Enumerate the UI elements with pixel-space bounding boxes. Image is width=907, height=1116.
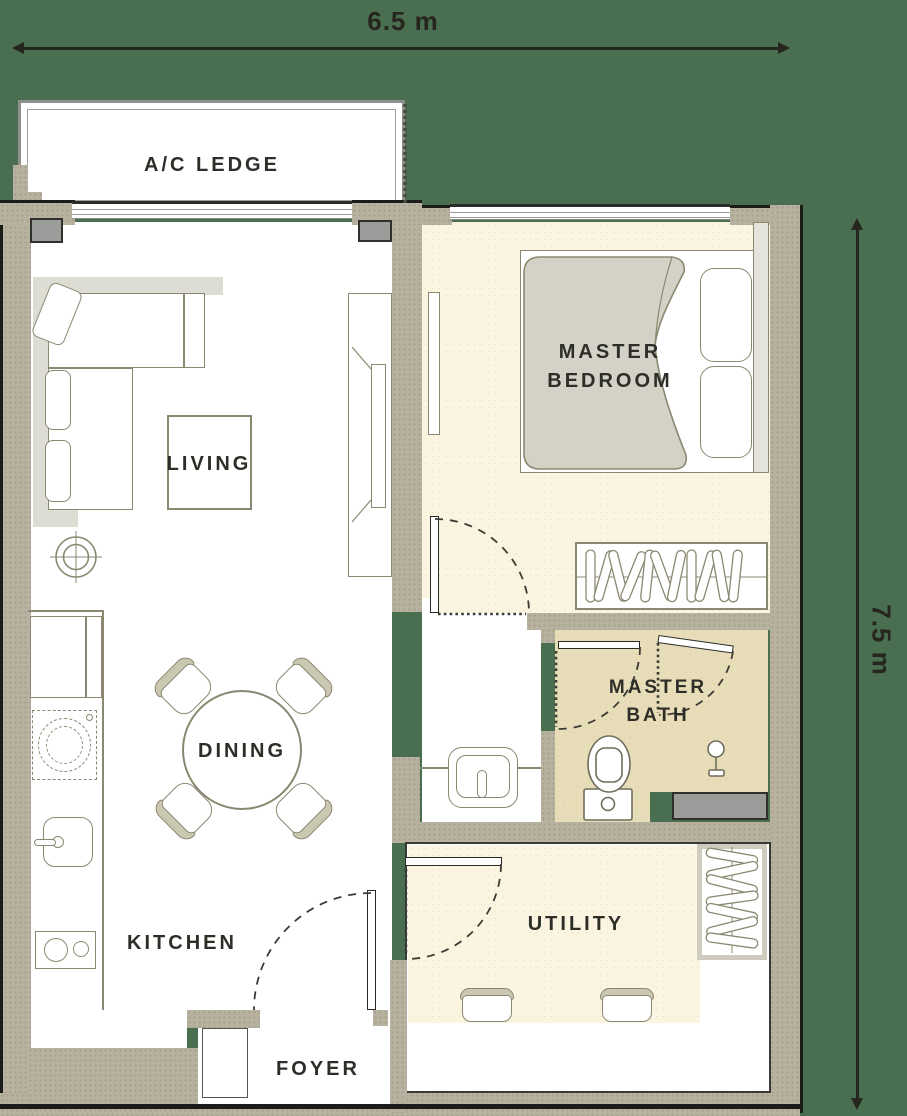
- entry-door-hinge-block: [373, 1010, 388, 1026]
- wall-bath-left: [541, 731, 555, 822]
- height-arrow-top-icon: [851, 218, 863, 230]
- foyer-label: FOYER: [276, 1055, 360, 1084]
- service-slab: [672, 792, 768, 820]
- cooktop-burner-small: [73, 941, 89, 957]
- wall-foyer-right: [390, 960, 407, 1113]
- bed-headboard: [753, 222, 769, 473]
- bath-floor-toilet: [555, 792, 650, 822]
- wall-divider-living-bedroom: [392, 222, 422, 612]
- width-arrow-right-icon: [778, 42, 790, 54]
- tv-bedroom-icon: [428, 292, 440, 435]
- kitchen-counter-edge: [102, 612, 104, 1010]
- bedroom-door-leaf: [430, 516, 439, 613]
- washer-knob: [86, 714, 93, 721]
- floorplan-canvas: A/C LEDGE MASTER BEDROOM LIVING MASTER B…: [0, 0, 907, 1116]
- bath-door-leaf: [558, 641, 640, 649]
- sink-tap-handle: [34, 839, 56, 846]
- utility-room: [405, 842, 771, 1093]
- fridge-divider: [85, 616, 87, 698]
- wall-foyer-stub: [187, 1010, 260, 1028]
- cooktop-burner-large: [44, 938, 68, 962]
- vanity-counter-right: [518, 767, 541, 769]
- tv-living-icon: [371, 364, 386, 508]
- height-dimension-line: [856, 228, 859, 1100]
- column-living-left: [30, 218, 63, 243]
- wall-bedroom-bottom: [527, 613, 770, 630]
- living-window: [72, 201, 352, 219]
- utility-label: UTILITY: [528, 910, 625, 939]
- wall-bedroom-pier: [422, 205, 452, 225]
- basin-tap: [477, 770, 487, 798]
- wall-right: [770, 205, 803, 1113]
- vanity-counter-left: [420, 767, 448, 769]
- column-living-right: [358, 220, 392, 242]
- plan-outer-edge: [0, 1104, 800, 1109]
- fridge: [30, 616, 102, 698]
- foyer-cabinet: [202, 1028, 248, 1098]
- sofa-cushion-2: [45, 440, 71, 502]
- ac-ledge-label: A/C LEDGE: [144, 151, 280, 180]
- width-dimension-label: 6.5 m: [367, 6, 439, 37]
- width-arrow-left-icon: [12, 42, 24, 54]
- kitchen-floor-strip: [28, 1010, 187, 1048]
- dining-label: DINING: [198, 737, 286, 766]
- master-bedroom-label: MASTER BEDROOM: [510, 338, 710, 396]
- living-label: LIVING: [167, 450, 252, 479]
- entry-door-leaf: [367, 890, 376, 1010]
- kitchen-label: KITCHEN: [127, 929, 237, 958]
- kitchen-counter-top: [28, 610, 104, 612]
- height-dimension-label: 7.5 m: [866, 604, 897, 676]
- height-arrow-bottom-icon: [851, 1098, 863, 1110]
- sofa-foot-rail: [33, 509, 78, 527]
- utility-stool-1: [460, 988, 514, 1022]
- wall-bath-step: [541, 628, 555, 643]
- bedroom-wardrobe: [575, 542, 768, 610]
- width-dimension-line: [22, 47, 782, 50]
- utility-door-leaf: [405, 857, 502, 866]
- washer-drum-inner: [46, 726, 83, 764]
- master-bath-label: MASTER BATH: [583, 674, 733, 729]
- bedroom-window: [450, 204, 730, 220]
- wall-utility-top: [392, 822, 771, 843]
- utility-wardrobe: [697, 844, 767, 960]
- sofa-armrest-line: [183, 293, 185, 368]
- utility-stool-2: [600, 988, 654, 1022]
- sofa-cushion-1: [45, 370, 71, 430]
- wall-left: [0, 200, 31, 1113]
